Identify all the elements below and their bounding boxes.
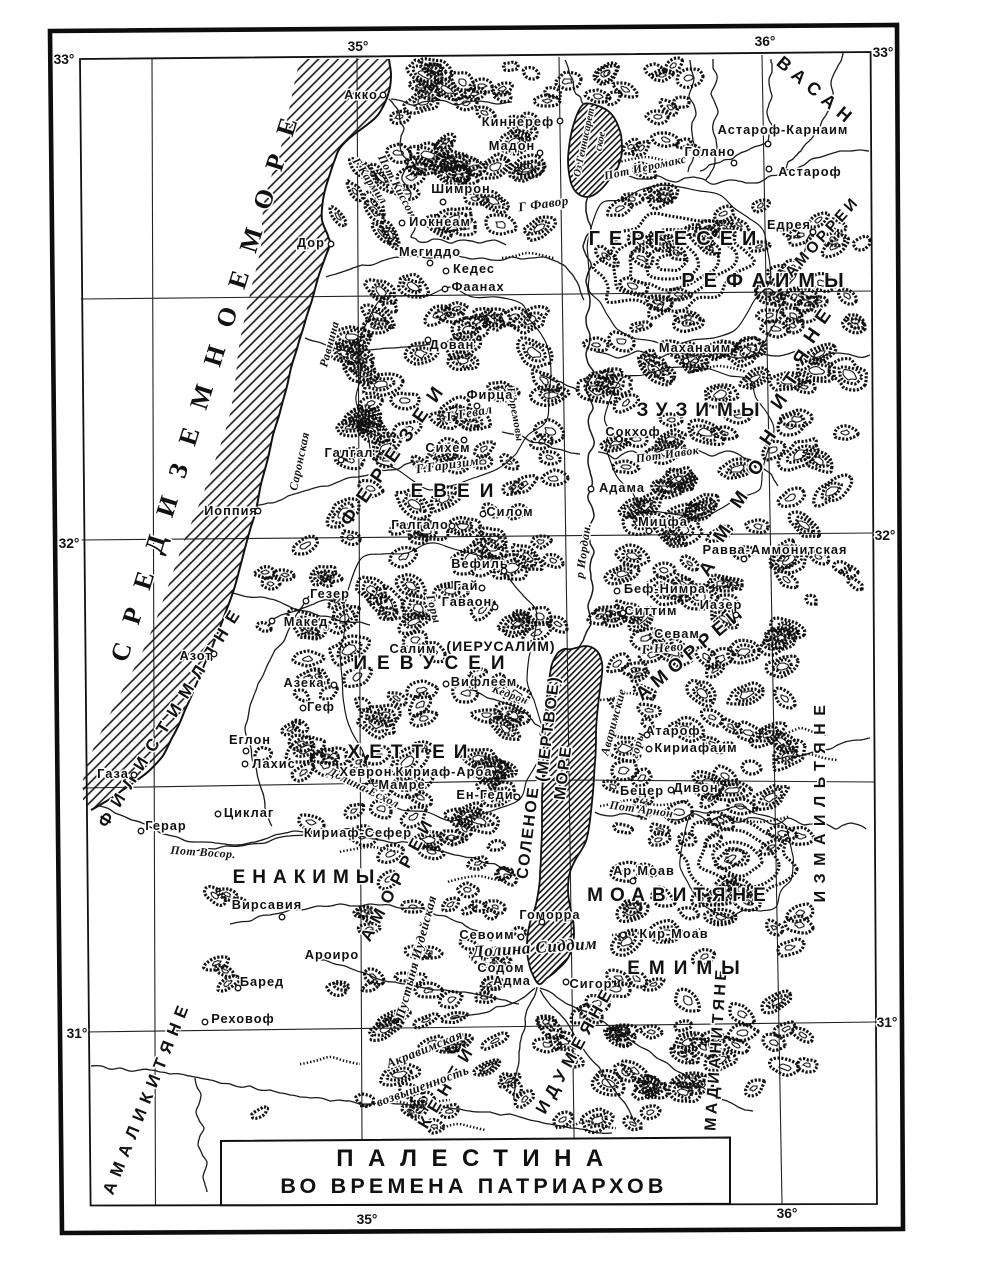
svg-text:Дивон: Дивон [673,780,718,795]
svg-text:ГЕРГЕСЕИ: ГЕРГЕСЕИ [589,228,766,250]
svg-text:31°: 31° [67,1026,88,1041]
svg-text:Азека: Азека [283,675,324,690]
svg-text:Иазер: Иазер [700,597,743,612]
svg-text:ВО ВРЕМЕНА ПАТРИАРХОВ: ВО ВРЕМЕНА ПАТРИАРХОВ [280,1174,667,1198]
svg-text:Реховоф: Реховоф [211,1011,275,1026]
svg-text:Кир-Моав: Кир-Моав [639,926,708,941]
svg-text:Севоим: Севоим [459,927,514,942]
svg-text:Адма: Адма [493,973,531,988]
svg-text:Кириаф-Сефер: Кириаф-Сефер [304,825,412,840]
svg-text:ЗУЗИМЫ: ЗУЗИМЫ [637,400,768,421]
svg-text:Ситтим: Ситтим [625,603,678,618]
svg-text:Мамре: Мамре [378,777,425,792]
svg-text:Голано: Голано [685,144,736,159]
svg-text:Сигор: Сигор [570,976,613,991]
svg-text:Салим: Салим [390,641,437,656]
svg-text:Астароф: Астароф [778,164,841,179]
svg-text:Гезер: Гезер [310,586,350,601]
svg-text:Ароиро: Ароиро [305,947,359,962]
svg-text:Гоморра: Гоморра [519,907,580,922]
svg-text:Равва-Аммонитская: Равва-Аммонитская [702,542,847,557]
svg-text:Дор: Дор [297,235,325,250]
svg-text:33°: 33° [54,52,75,67]
svg-text:35°: 35° [357,1212,378,1227]
svg-text:Дован: Дован [430,337,475,352]
svg-text:ЕНАКИМЫ: ЕНАКИМЫ [233,867,382,888]
svg-text:Вефиль: Вефиль [451,556,508,571]
svg-text:Киннереф: Киннереф [482,114,554,129]
svg-text:Геф: Геф [307,699,335,714]
svg-text:Атароф: Атароф [645,723,700,738]
svg-text:Иокнеам: Иокнеам [409,214,471,229]
svg-text:Маханаим: Маханаим [659,340,731,355]
svg-text:Лахис: Лахис [252,756,296,771]
svg-text:Вифлеем: Вифлеем [451,674,517,689]
svg-text:Гай: Гай [453,578,478,593]
svg-text:Силом: Силом [486,504,533,519]
svg-text:Галгало: Галгало [391,517,449,532]
svg-text:ЕМИМЫ: ЕМИМЫ [627,958,749,979]
svg-text:35°: 35° [348,39,369,54]
svg-text:Иоппия: Иоппия [204,503,258,518]
svg-text:Газа: Газа [97,766,129,781]
svg-text:33°: 33° [873,45,894,60]
svg-text:36°: 36° [755,34,776,49]
svg-text:Гаваон: Гаваон [442,594,493,609]
svg-text:Сокхоф: Сокхоф [605,424,660,439]
svg-text:Вирсавия: Вирсавия [232,897,303,912]
svg-text:Фирца: Фирца [467,387,514,402]
svg-text:Кедес: Кедес [453,261,495,276]
svg-text:Акко: Акко [344,87,378,102]
svg-text:Баред: Баред [240,974,284,989]
svg-text:Беф-Нимра: Беф-Нимра [624,581,706,596]
svg-text:(ИЕРУСАЛИМ): (ИЕРУСАЛИМ) [446,638,555,654]
svg-text:Ар·Моав: Ар·Моав [613,863,675,878]
svg-text:ИЕВУСЕИ: ИЕВУСЕИ [353,653,514,674]
svg-text:ЕВЕИ: ЕВЕИ [411,481,504,502]
svg-text:Фаанах: Фаанах [451,279,504,294]
svg-text:Мадон: Мадон [489,138,536,153]
svg-text:Макед: Макед [284,614,329,629]
svg-text:Адама: Адама [599,480,645,495]
svg-text:Азот: Азот [179,648,212,663]
svg-text:Едрея: Едрея [767,217,811,232]
svg-text:Мицфа: Мицфа [638,514,688,529]
svg-text:Галгал: Галгал [325,445,374,460]
svg-text:Мегиддо: Мегиддо [399,244,461,259]
svg-text:Шимрон: Шимрон [431,181,491,196]
svg-text:31°: 31° [877,1015,898,1030]
svg-text:ИЗМАИЛЬТЯНЕ: ИЗМАИЛЬТЯНЕ [812,698,829,903]
svg-text:ХЕТТЕИ: ХЕТТЕИ [348,742,477,763]
svg-text:Астароф-Карнаим: Астароф-Карнаим [718,122,849,137]
svg-text:Севам: Севам [654,626,700,641]
svg-text:Бецер: Бецер [620,783,664,798]
svg-text:ПАЛЕСТИНА: ПАЛЕСТИНА [336,1145,618,1172]
svg-text:Ен-Геди: Ен-Геди [456,787,513,802]
svg-text:Герар: Герар [145,818,186,833]
svg-text:РЕФАИМЫ: РЕФАИМЫ [681,270,852,292]
svg-text:36°: 36° [777,1206,798,1221]
svg-text:Еглон: Еглон [229,732,271,747]
svg-text:Кириафаим: Кириафаим [654,740,737,755]
svg-text:Циклаг: Циклаг [224,805,274,820]
svg-text:МОАВИТЯНЕ: МОАВИТЯНЕ [587,885,773,906]
svg-text:32°: 32° [59,536,80,551]
svg-text:32°: 32° [875,528,896,543]
